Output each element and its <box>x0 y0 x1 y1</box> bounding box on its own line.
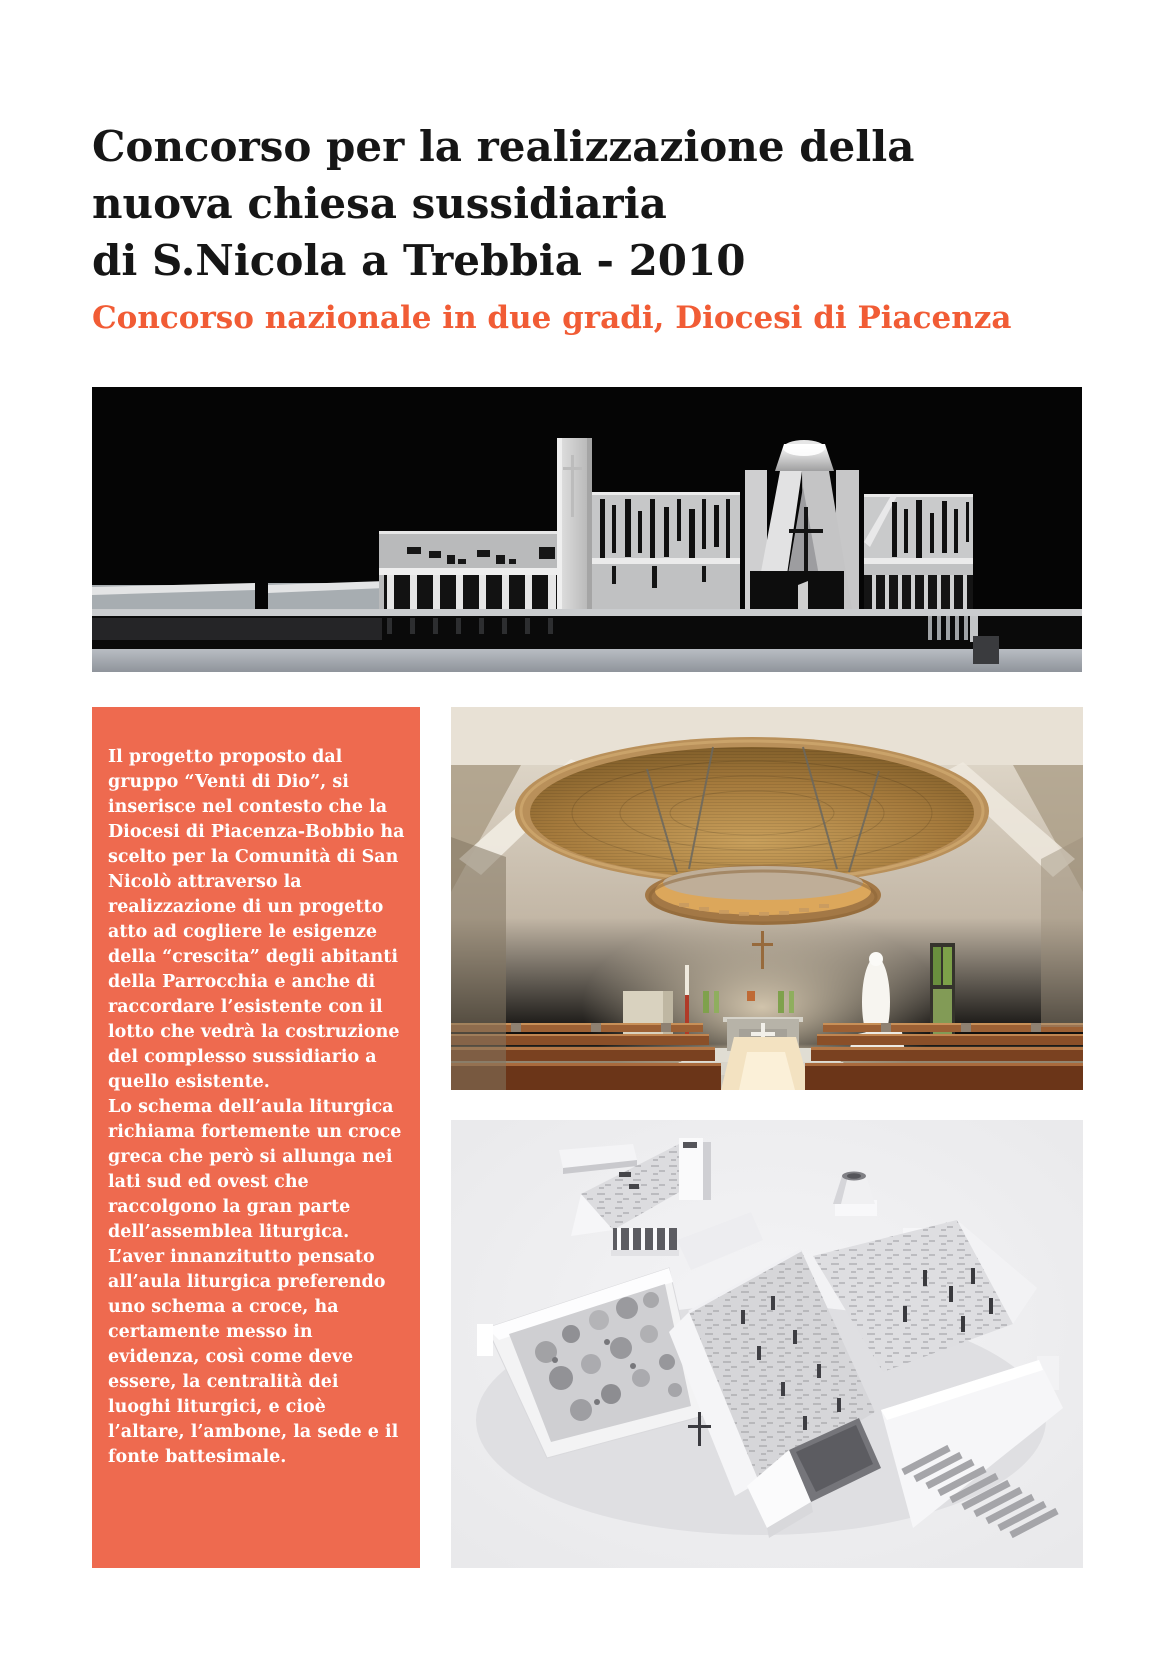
elevation-render <box>92 387 1082 672</box>
entry-porch <box>750 571 844 609</box>
boundary-walls <box>92 581 384 609</box>
low-wing <box>379 531 562 609</box>
title-line-3: di S.Nicola a Trebbia - 2010 <box>92 232 1082 289</box>
page-title: Concorso per la realizzazione della nuov… <box>92 118 1082 289</box>
title-line-1: Concorso per la realizzazione della <box>92 118 1082 175</box>
description-panel: Il progetto proposto dal gruppo “Venti d… <box>92 707 420 1568</box>
description-paragraph-1: Il progetto proposto dal gruppo “Venti d… <box>108 745 407 1095</box>
bell-tower <box>557 438 592 609</box>
description-paragraph-3: L’aver innanzitutto pensato all’aula lit… <box>108 1245 407 1470</box>
ground-reflection <box>92 609 1082 672</box>
paschal-candle <box>685 965 689 995</box>
aerial-model-render <box>451 1120 1083 1568</box>
right-wall-shade <box>1041 837 1083 1027</box>
poster-page: Concorso per la realizzazione della nuov… <box>0 0 1170 1653</box>
elevation-render-image <box>92 387 1082 672</box>
description-paragraph-2: Lo schema dell’aula liturgica richiama f… <box>108 1095 407 1245</box>
nave-wall <box>592 492 740 609</box>
model-cross <box>698 1412 701 1446</box>
title-line-2: nuova chiesa sussidiaria <box>92 175 1082 232</box>
header: Concorso per la realizzazione della nuov… <box>92 118 1082 337</box>
page-subtitle: Concorso nazionale in due gradi, Diocesi… <box>92 299 1082 337</box>
aerial-model-render-image <box>451 1120 1083 1568</box>
interior-render-image <box>451 707 1083 1090</box>
right-block <box>864 494 973 609</box>
interior-render <box>451 707 1083 1090</box>
wooden-dome <box>515 737 989 885</box>
hanging-cross <box>761 931 764 969</box>
left-wall-shade <box>451 837 506 1090</box>
